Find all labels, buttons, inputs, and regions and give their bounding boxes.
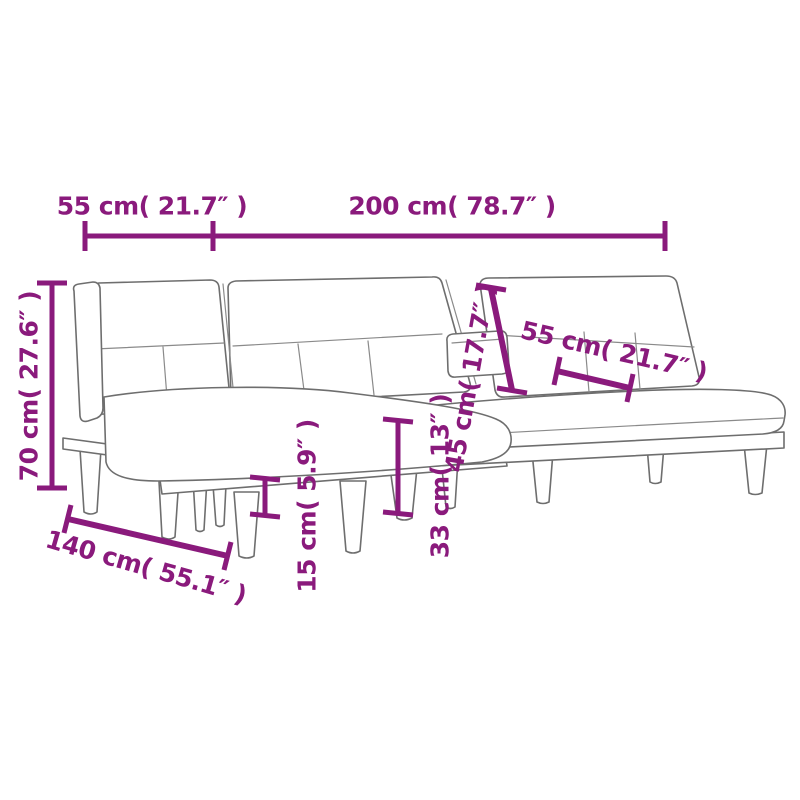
dimension-label-seat-height: 33 cm( 13″ ) (426, 394, 455, 559)
sofa-outline (63, 276, 785, 558)
product-dimension-image: 55 cm( 21.7″ ) 200 cm( 78.7″ ) 70 cm( 27… (0, 0, 800, 800)
dimension-label-leg-height: 15 cm( 5.9″ ) (293, 419, 322, 593)
backrest-left-half (228, 277, 470, 404)
dimension-label-chaise-width: 55 cm( 21.7″ ) (57, 192, 247, 221)
dimension-line-top-width (85, 221, 665, 251)
sofa-line-drawing (0, 0, 800, 800)
dimension-label-overall-height: 70 cm( 27.6″ ) (15, 291, 44, 481)
dimension-label-sofa-length: 200 cm( 78.7″ ) (348, 192, 555, 221)
left-arm-panel (74, 282, 103, 421)
